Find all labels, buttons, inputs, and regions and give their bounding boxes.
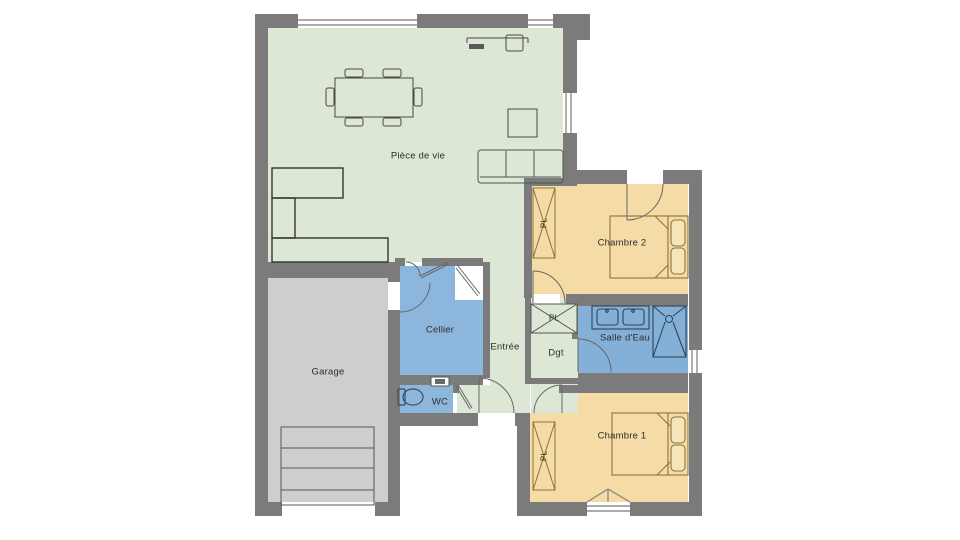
room-living-lower (268, 184, 524, 262)
label-garage: Garage (312, 367, 345, 378)
wall-segment (255, 262, 400, 278)
wall-segment (525, 298, 531, 384)
wall-segment (578, 373, 688, 393)
wall-segment (395, 258, 405, 266)
room-entry-south (457, 385, 530, 413)
pantry-door-pocket (455, 265, 483, 300)
wall-segment (524, 184, 532, 298)
window-living-top2 (528, 20, 553, 25)
wall-segment (388, 310, 400, 502)
wall-segment (255, 502, 282, 516)
floor-plan: Pièce de vie Chambre 2 Cellier Entrée Dg… (0, 0, 960, 540)
wall-segment (400, 413, 478, 426)
room-garage (268, 278, 388, 502)
label-closet-bedroom1: PL (540, 451, 549, 461)
room-bedroom1 (530, 413, 688, 502)
label-pantry: Cellier (426, 325, 454, 336)
wall-segment (559, 385, 578, 393)
wall-segment (453, 385, 459, 393)
wall-segment (375, 502, 400, 516)
label-bathroom: Salle d'Eau (600, 333, 650, 344)
window-living-top (298, 20, 417, 25)
window-living-right (566, 93, 571, 133)
wall-segment (630, 502, 702, 516)
wall-segment (483, 262, 490, 378)
wall-segment (572, 305, 578, 339)
window-bathroom-right (692, 350, 697, 373)
wall-segment (517, 413, 530, 502)
wall-segment (422, 258, 483, 266)
bedroom2-door-threshold (533, 294, 560, 304)
wall-segment (689, 373, 702, 516)
wall-segment (525, 378, 578, 384)
label-bedroom2: Chambre 2 (598, 238, 647, 249)
wall-segment (517, 502, 587, 516)
wall-segment (566, 294, 688, 306)
label-hallway: Dgt (548, 348, 563, 359)
room-hallway (531, 298, 578, 384)
label-living-room: Pièce de vie (391, 151, 445, 162)
label-bedroom1: Chambre 1 (598, 431, 647, 442)
label-wc: WC (432, 397, 448, 408)
wall-segment (515, 413, 530, 426)
room-bedroom1-upper (578, 393, 688, 413)
label-closet-bedroom2: PL (540, 218, 549, 228)
wall-segment (563, 14, 577, 93)
wall-segment (388, 265, 400, 282)
wall-segment (417, 14, 528, 28)
wall-segment (689, 170, 702, 350)
label-entry: Entrée (490, 342, 519, 353)
label-closet-hallway: PL (549, 314, 559, 323)
wall-segment (563, 170, 627, 184)
wall-segment (400, 375, 483, 385)
